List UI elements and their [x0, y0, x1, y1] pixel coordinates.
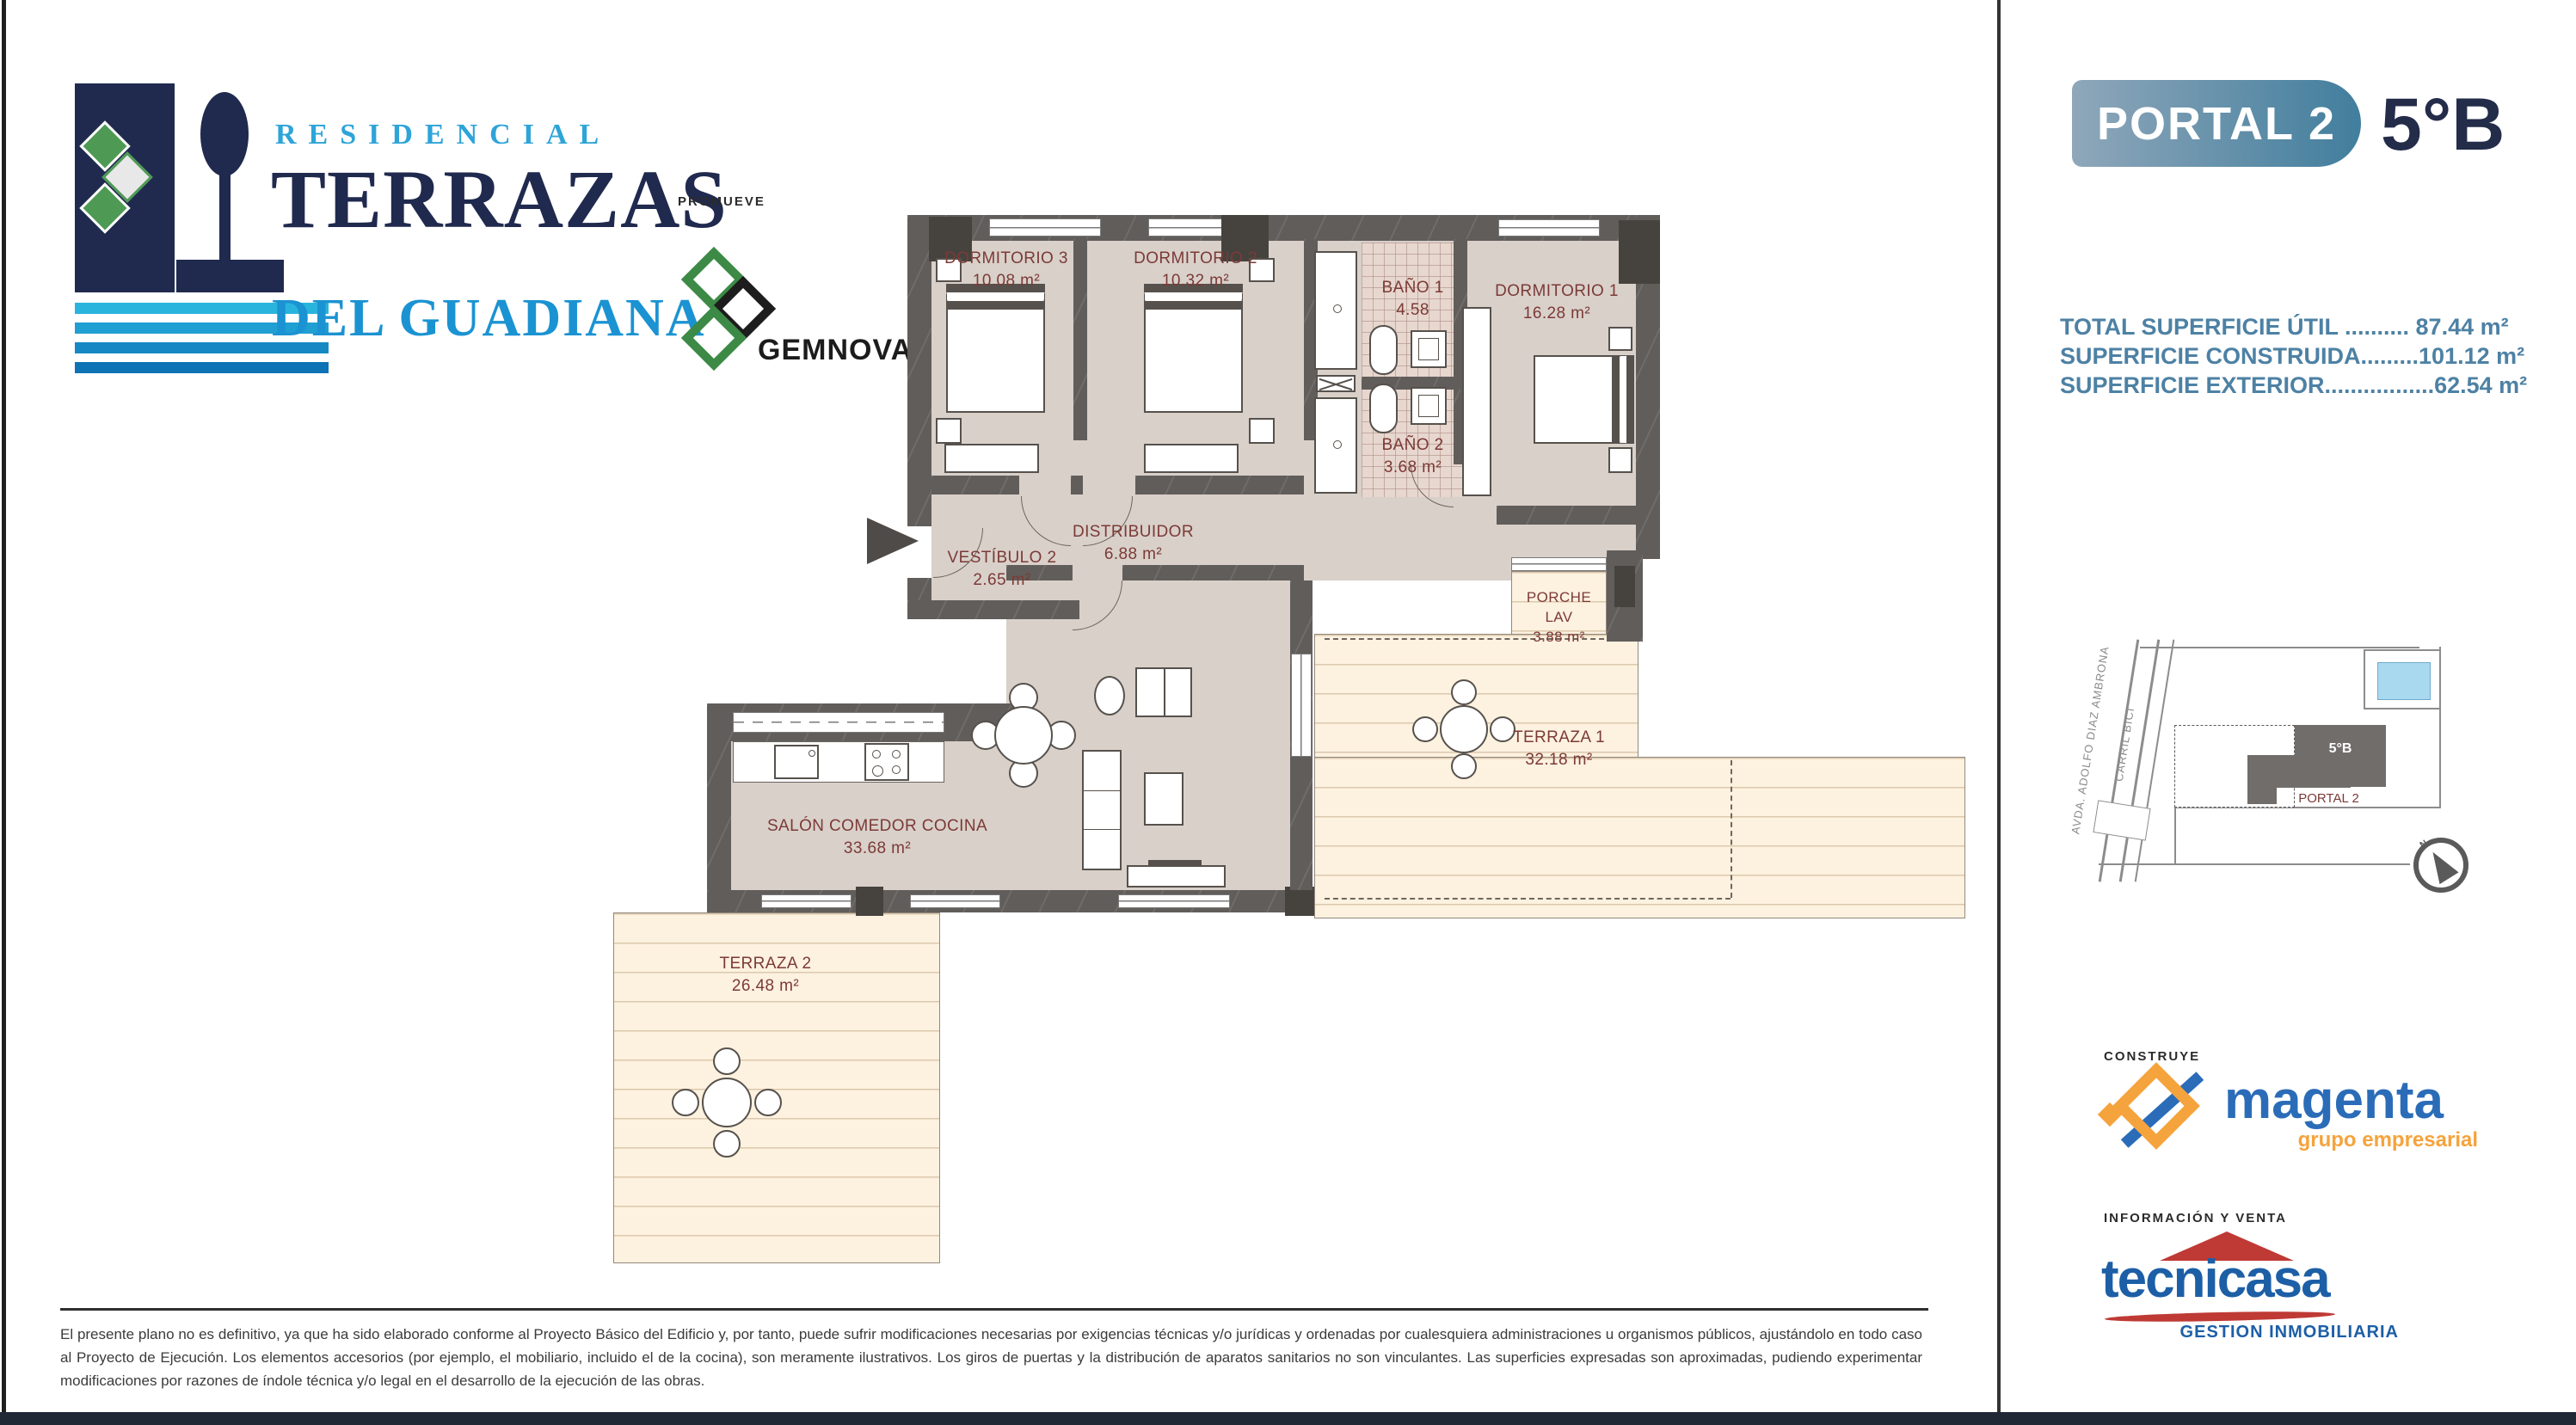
gemnova-logo: GEMNOVA [675, 241, 882, 387]
wall-dorm1-bottom [1497, 506, 1636, 525]
sofa [1082, 750, 1122, 870]
building-footprint [2247, 755, 2277, 804]
room-label-terraza1: TERRAZA 132.18 m² [1488, 727, 1630, 771]
armchair [1094, 676, 1125, 716]
room-label-salon: SALÓN COMEDOR COCINA33.68 m² [757, 815, 998, 859]
compass: N [2413, 838, 2468, 893]
terrace-chair [1451, 753, 1477, 779]
sitemap-portal-label: PORTAL 2 [2279, 791, 2378, 806]
page-left-border [2, 0, 6, 1425]
room-label-bano2: BAÑO 23.68 m² [1363, 434, 1462, 478]
bathtub [1369, 384, 1398, 433]
surface-util: TOTAL SUPERFICIE ÚTIL .......... 87.44 m… [2060, 313, 2503, 342]
wardrobe [1462, 307, 1491, 496]
toilet [1411, 387, 1447, 425]
nightstand [1249, 418, 1275, 444]
kitchen-stove [864, 743, 909, 781]
dining-table [994, 706, 1053, 765]
terrace-chair [672, 1089, 699, 1116]
magenta-icon [2101, 1068, 2213, 1154]
toilet [1411, 330, 1447, 368]
room-label-dorm2: DORMITORIO 210.32 m² [1114, 248, 1277, 292]
terrace-table [702, 1078, 752, 1127]
plot-line [2099, 863, 2410, 865]
kitchen-counter [733, 741, 944, 783]
terrace-chair [713, 1047, 741, 1075]
footer-bar [0, 1412, 2576, 1425]
loveseat [1135, 667, 1192, 717]
magenta-logo: magenta grupo empresarial [2101, 1068, 2497, 1163]
window [1498, 219, 1600, 236]
bed [946, 284, 1045, 413]
plot-line [2140, 647, 2419, 648]
surface-exterior: SUPERFICIE EXTERIOR.................62.5… [2060, 372, 2503, 401]
compass-north-label: N [2418, 838, 2429, 851]
terrace-dashed-line [1731, 760, 1732, 898]
bed [1144, 284, 1243, 413]
terrace-table [1440, 705, 1488, 753]
shaft-box [1316, 375, 1356, 392]
terrace-glass-door [1291, 654, 1312, 757]
nightstand [1608, 327, 1632, 351]
bed [1534, 355, 1634, 444]
window [761, 894, 851, 908]
deck-terraza-1-lower [1314, 757, 1965, 918]
portal-badge: PORTAL 2 [2072, 80, 2361, 167]
porche-window [1511, 557, 1607, 571]
magenta-tagline: grupo empresarial [2224, 1128, 2478, 1152]
brand-terrazas: TERRAZAS [271, 160, 728, 238]
terrace-chair [754, 1089, 782, 1116]
coffee-table [1144, 772, 1183, 826]
brand-stripe [75, 362, 329, 373]
wall-distribuidor-bottom [1122, 565, 1304, 580]
wall-bedrooms-bottom [1135, 476, 1304, 494]
sidebar-divider [1997, 0, 2001, 1413]
terrace-chair [713, 1130, 741, 1158]
room-label-dorm1: DORMITORIO 116.28 m² [1475, 280, 1638, 324]
wardrobe [944, 444, 1039, 473]
closet [1314, 251, 1357, 370]
disclaimer-rule [60, 1308, 1928, 1311]
brand-residencial: RESIDENCIAL [275, 119, 611, 151]
tecnicasa-swoosh-icon [2105, 1310, 2335, 1324]
window [910, 894, 1000, 908]
tecnicasa-logo: tecnicasa GESTION INMOBILIARIA [2101, 1232, 2445, 1343]
closet [1314, 397, 1357, 494]
pool [2377, 662, 2431, 700]
surface-construida: SUPERFICIE CONSTRUIDA.........101.12 m² [2060, 342, 2503, 372]
nightstand [936, 418, 962, 444]
nightstand [1608, 447, 1632, 473]
compass-needle-icon [2423, 846, 2458, 884]
promueve-label: PROMUEVE [678, 194, 765, 209]
sitemap-unit-label: 5°B [2295, 741, 2386, 757]
room-label-vestibulo: VESTÍBULO 22.65 m² [925, 547, 1079, 591]
room-label-porche: PORCHE LAV3.88 m² [1511, 588, 1607, 648]
pillar [1619, 220, 1660, 284]
flat-number: 5°B [2381, 83, 2505, 168]
entrance-arrow-icon [867, 518, 919, 564]
pillar [1285, 887, 1314, 916]
room-label-terraza2: TERRAZA 226.48 m² [688, 953, 843, 997]
terrace-dashed-line [1325, 898, 1731, 900]
room-label-dorm3: DORMITORIO 310.08 m² [925, 248, 1088, 292]
pillar [856, 887, 883, 916]
tv [1148, 860, 1202, 865]
wall-bedrooms-bottom [931, 476, 1019, 494]
room-label-distribuidor: DISTRIBUIDOR6.88 m² [1058, 521, 1208, 565]
window [1118, 894, 1230, 908]
construye-label: CONSTRUYE [2104, 1049, 2200, 1064]
window [989, 218, 1101, 236]
street-block [2093, 800, 2150, 840]
kitchen-sink [774, 745, 819, 779]
room-label-bano1: BAÑO 14.58 [1363, 277, 1462, 321]
magenta-name: magenta [2224, 1070, 2444, 1131]
kitchen-window [733, 712, 944, 733]
brand-del-guadiana: DEL GUADIANA [272, 288, 706, 349]
tecnicasa-name: tecnicasa [2101, 1249, 2329, 1310]
terrace-chair [1412, 716, 1438, 742]
disclaimer-text: El presente plano no es definitivo, ya q… [60, 1323, 1922, 1393]
tv-bench [1127, 865, 1226, 888]
brand-emblem [75, 83, 175, 292]
gemnova-name: GEMNOVA [758, 334, 913, 367]
wardrobe [1144, 444, 1239, 473]
wall-bedrooms-bottom [1071, 476, 1083, 494]
wall-salon-left [707, 703, 731, 912]
plot-line [2174, 807, 2176, 865]
portal-badge-label: PORTAL 2 [2097, 97, 2336, 150]
porche-shaft [1614, 566, 1635, 607]
tecnicasa-tagline: GESTION INMOBILIARIA [2168, 1323, 2399, 1342]
wall-vestibulo-bottom [907, 600, 1079, 619]
brochure-page: RESIDENCIAL TERRAZAS DEL GUADIANA PROMUE… [0, 0, 2576, 1425]
terrace-chair [1451, 679, 1477, 705]
bathtub [1369, 325, 1398, 375]
venta-label: INFORMACIÓN Y VENTA [2104, 1211, 2287, 1225]
surface-summary: TOTAL SUPERFICIE ÚTIL .......... 87.44 m… [2060, 313, 2503, 400]
